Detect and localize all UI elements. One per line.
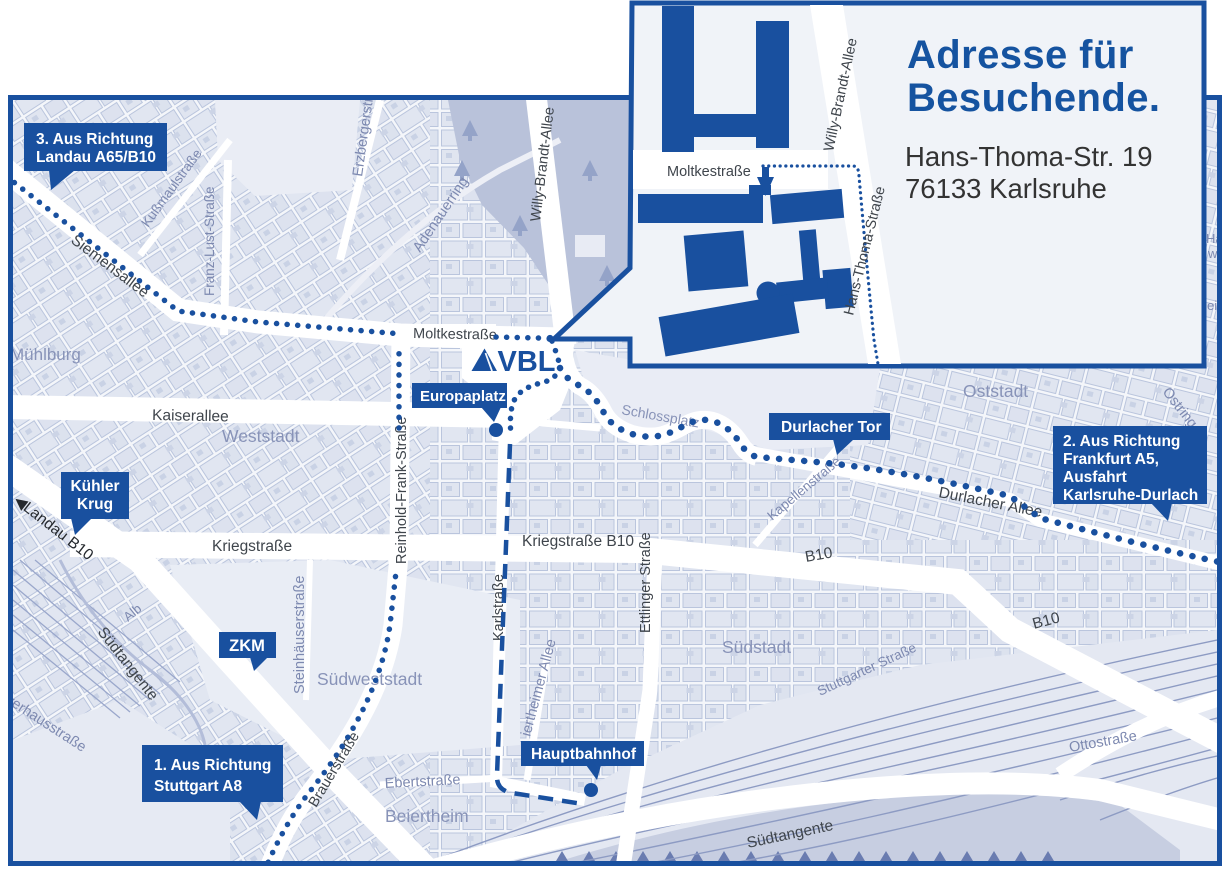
svg-text:76133 Karlsruhe: 76133 Karlsruhe xyxy=(905,173,1107,204)
svg-text:Stuttgart A8: Stuttgart A8 xyxy=(154,778,242,795)
svg-text:Moltkestraße: Moltkestraße xyxy=(413,326,497,343)
svg-text:Weststadt: Weststadt xyxy=(222,426,300,446)
svg-text:Hauptbahnhof: Hauptbahnhof xyxy=(531,746,637,763)
svg-text:1. Aus Richtung: 1. Aus Richtung xyxy=(154,757,271,774)
svg-text:Durlacher Tor: Durlacher Tor xyxy=(781,419,882,436)
svg-text:Krug: Krug xyxy=(77,496,113,513)
svg-text:ZKM: ZKM xyxy=(229,637,265,655)
svg-text:Reinhold-Frank-Straße: Reinhold-Frank-Straße xyxy=(394,417,410,564)
svg-text:Oststadt: Oststadt xyxy=(963,381,1028,401)
svg-text:Kriegstraße B10: Kriegstraße B10 xyxy=(522,533,634,550)
svg-text:Kühler: Kühler xyxy=(70,478,119,495)
svg-text:Beiertheim: Beiertheim xyxy=(385,806,469,826)
svg-text:Franz-Lust-Straße: Franz-Lust-Straße xyxy=(202,186,217,296)
svg-text:VBL: VBL xyxy=(498,346,556,378)
svg-text:Kriegstraße: Kriegstraße xyxy=(212,538,292,555)
svg-text:Steinhäuserstraße: Steinhäuserstraße xyxy=(292,576,308,694)
svg-text:Südweststadt: Südweststadt xyxy=(317,669,422,689)
svg-text:Landau A65/B10: Landau A65/B10 xyxy=(36,149,156,166)
svg-text:Frankfurt A5,: Frankfurt A5, xyxy=(1063,451,1159,468)
svg-text:Mühlburg: Mühlburg xyxy=(10,345,81,364)
svg-text:Hans-Thoma-Str. 19: Hans-Thoma-Str. 19 xyxy=(905,141,1153,172)
svg-text:2. Aus Richtung: 2. Aus Richtung xyxy=(1063,433,1180,450)
svg-text:Südstadt: Südstadt xyxy=(722,637,791,657)
svg-text:Karlstraße: Karlstraße xyxy=(491,574,507,641)
svg-text:Adresse für: Adresse für xyxy=(907,33,1134,77)
svg-text:3. Aus Richtung: 3. Aus Richtung xyxy=(36,131,153,148)
svg-text:Ausfahrt: Ausfahrt xyxy=(1063,469,1127,486)
svg-text:Kaiserallee: Kaiserallee xyxy=(152,407,229,425)
svg-text:Ettlinger Straße: Ettlinger Straße xyxy=(638,532,654,633)
svg-text:Moltkestraße: Moltkestraße xyxy=(667,164,751,180)
svg-text:Karlsruhe-Durlach: Karlsruhe-Durlach xyxy=(1063,487,1198,504)
svg-text:Europaplatz: Europaplatz xyxy=(420,388,506,405)
svg-text:Besuchende.: Besuchende. xyxy=(907,76,1160,120)
